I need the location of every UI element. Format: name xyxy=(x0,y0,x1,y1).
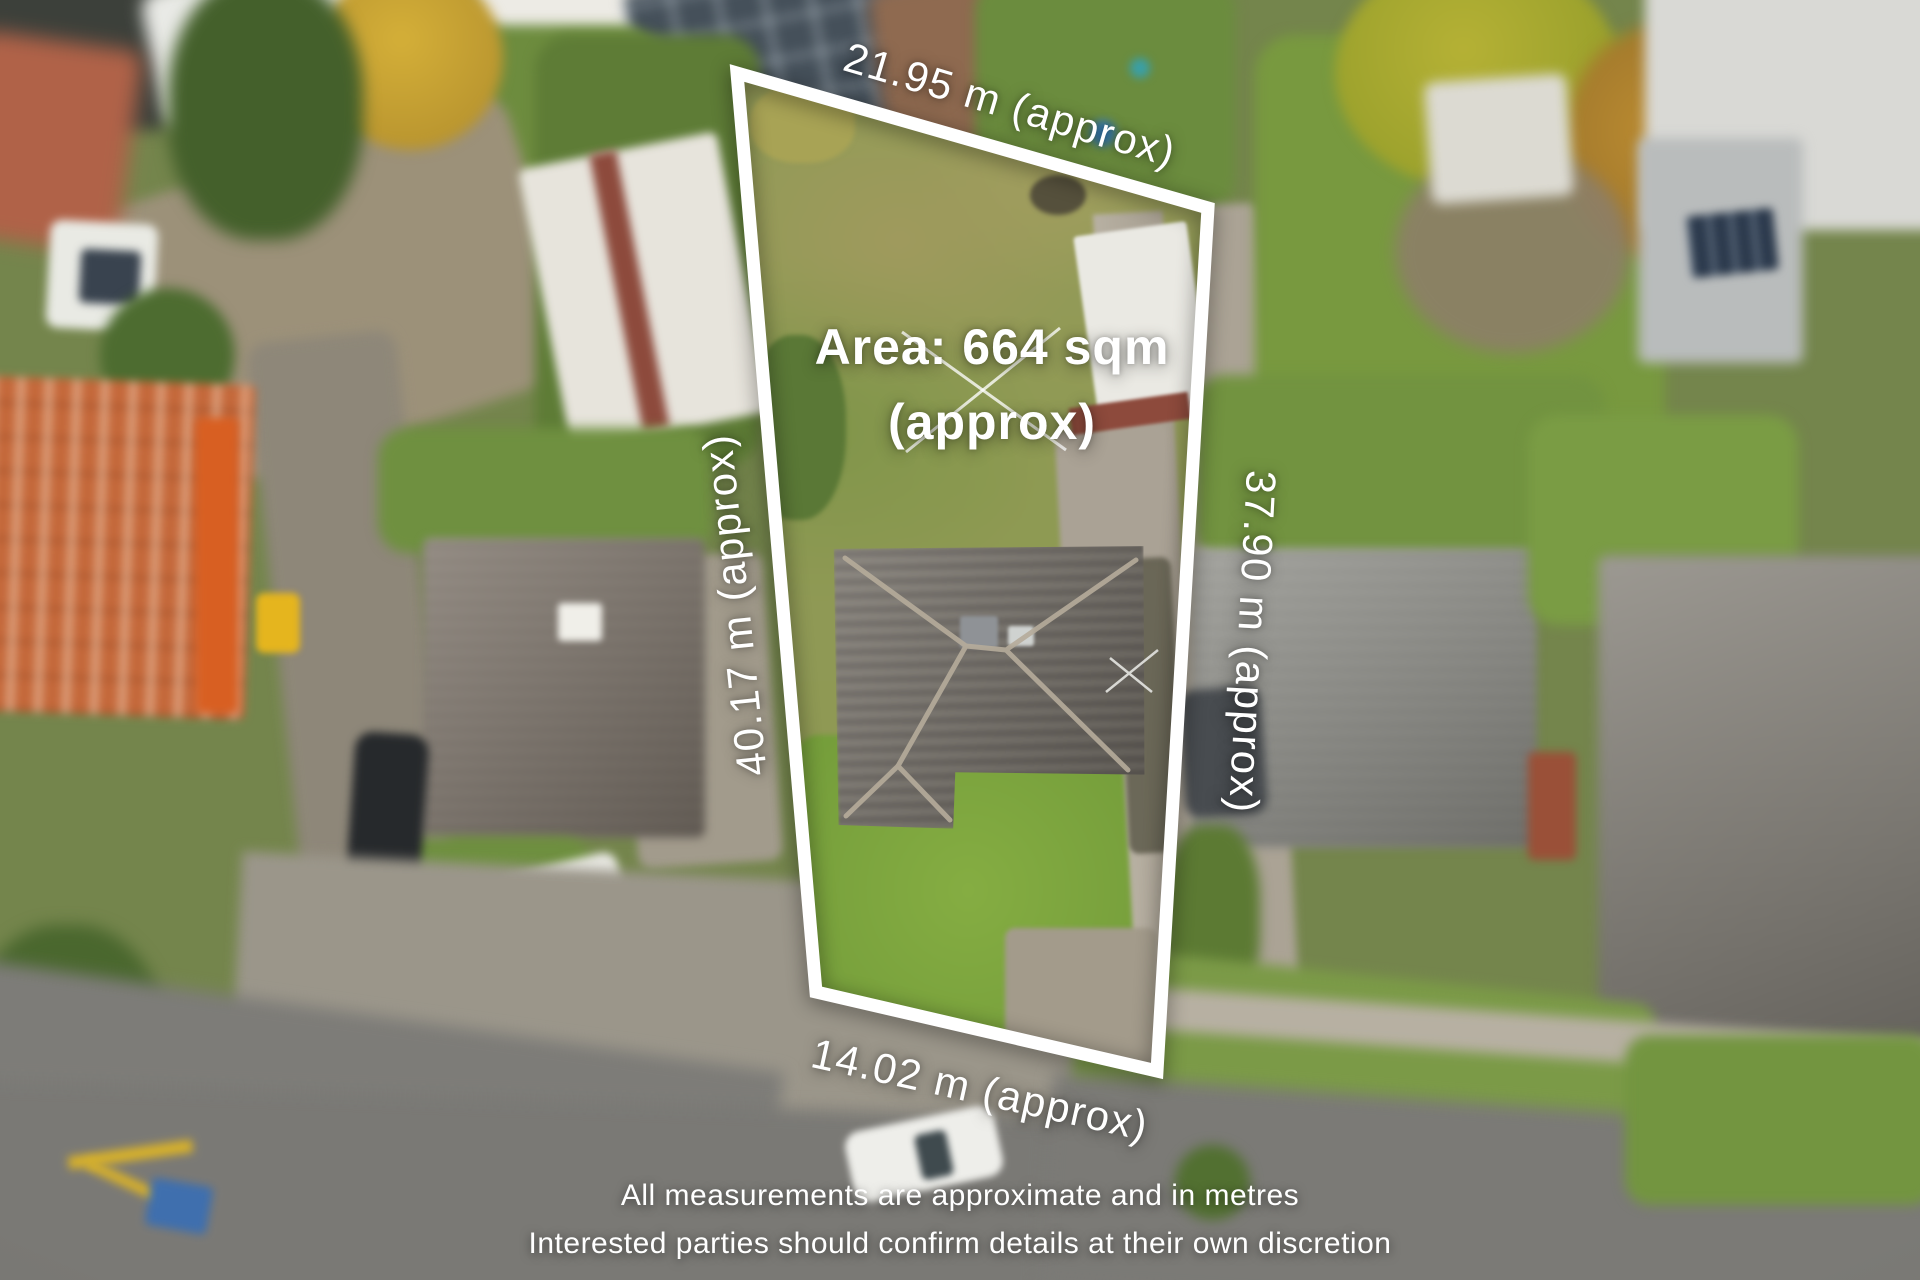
area-approx: (approx) xyxy=(782,385,1202,460)
disclaimer-line-2: Interested parties should confirm detail… xyxy=(460,1220,1460,1268)
disclaimer: All measurements are approximate and in … xyxy=(460,1172,1460,1268)
aerial-listing-photo: 21.95 m (approx) 40.17 m (approx) 37.90 … xyxy=(0,0,1920,1280)
disclaimer-line-1: All measurements are approximate and in … xyxy=(460,1172,1460,1220)
area-value: Area: 664 sqm xyxy=(782,310,1202,385)
property-boundary-line xyxy=(737,73,1208,1071)
area-label: Area: 664 sqm (approx) xyxy=(782,310,1202,460)
